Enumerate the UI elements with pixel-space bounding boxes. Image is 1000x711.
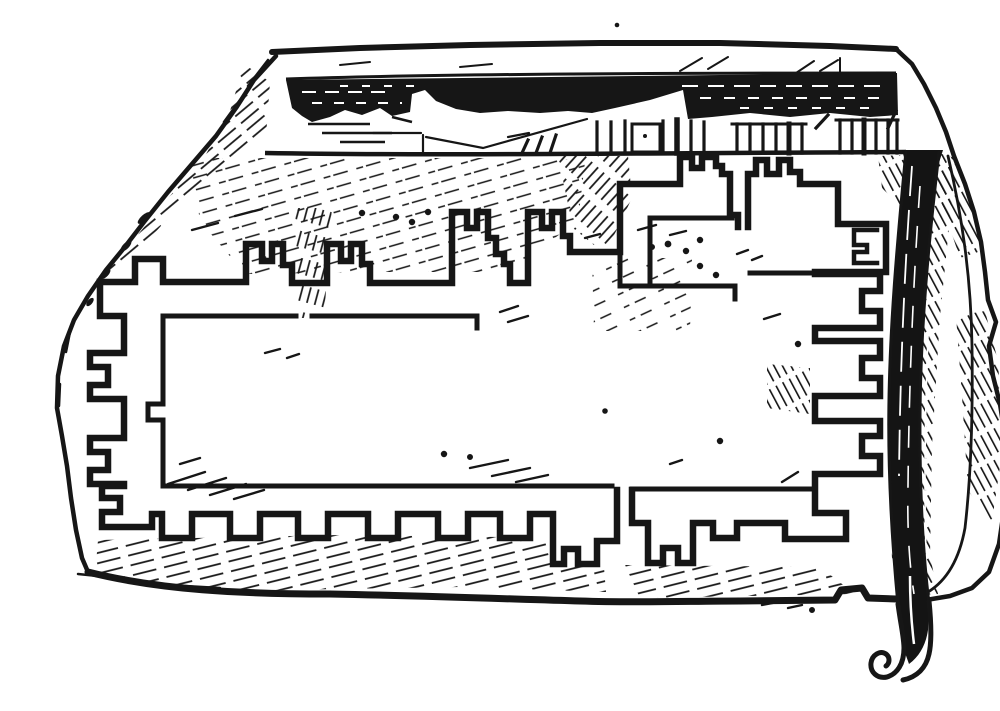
ruler-baseline <box>265 152 906 154</box>
engraving-figure: Black-and-white engraving of a broken st… <box>40 16 1000 695</box>
paper-background <box>40 16 1000 695</box>
ruler-blank-segment <box>632 124 660 152</box>
hatch-inner-right-wall <box>767 364 810 414</box>
stone-tablet-engraving <box>40 16 1000 695</box>
ruler-segment-dot <box>643 134 647 138</box>
top-margin-dot <box>615 23 620 28</box>
hatch-streak-mid <box>592 258 692 331</box>
hatch-bottom-right <box>625 565 855 598</box>
